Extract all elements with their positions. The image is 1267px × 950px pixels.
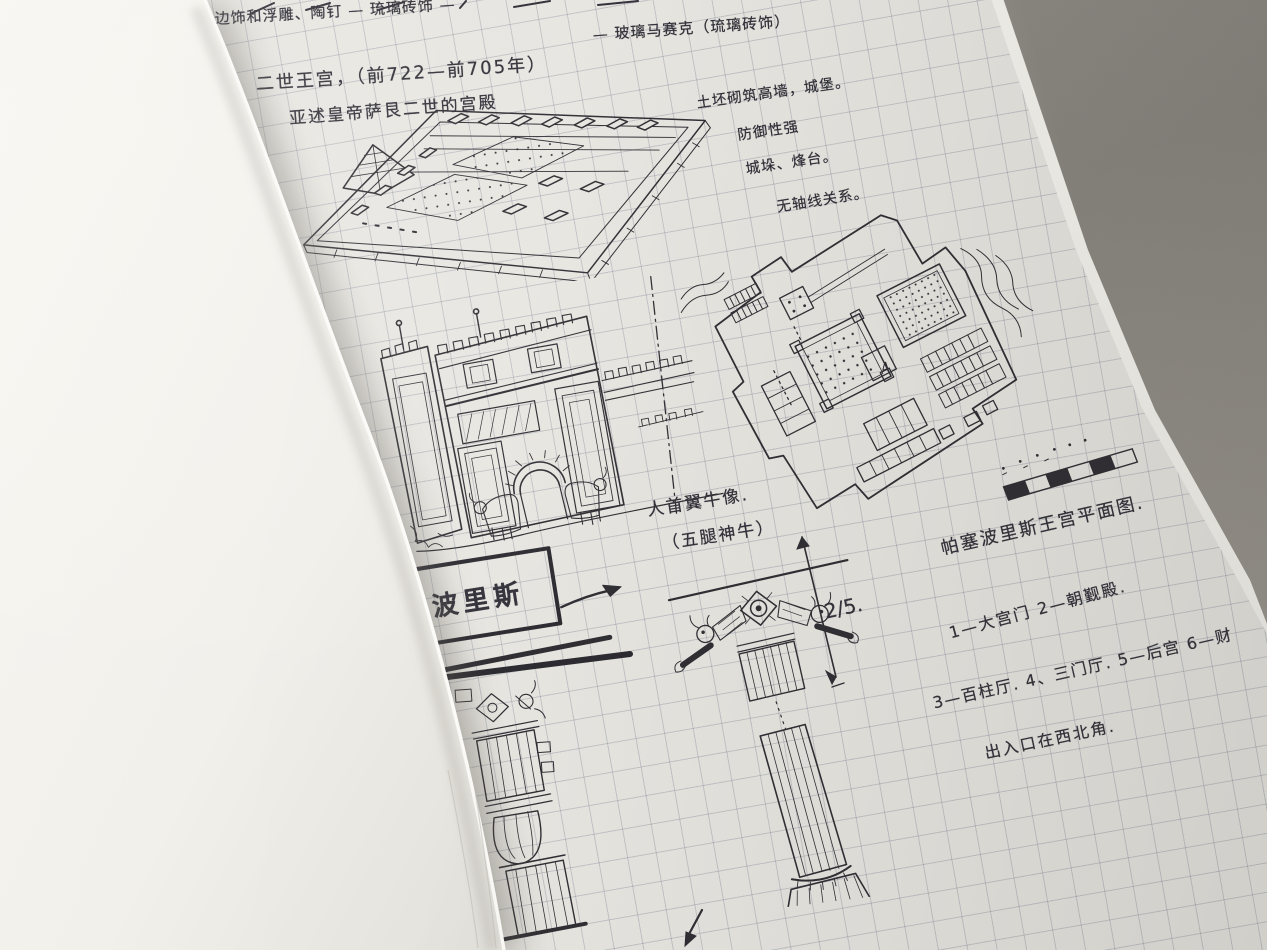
- down-arrow: [676, 906, 710, 950]
- left-page-stack: [0, 0, 540, 950]
- notebook-photo: 边饰和浮雕、陶钉 — 琉璃砖饰 — — 玻璃马赛克（琉璃砖饰） 二世王宫，（前7…: [0, 0, 1267, 950]
- persian-column-sketch: [636, 549, 916, 921]
